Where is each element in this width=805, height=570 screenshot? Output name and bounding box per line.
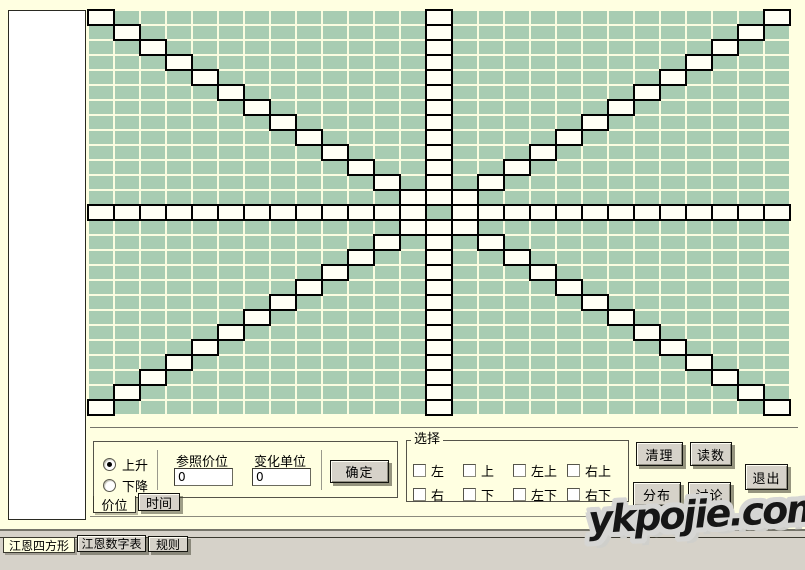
grid-cell[interactable]: [687, 71, 711, 84]
grid-cell[interactable]: [323, 116, 347, 129]
grid-cell[interactable]: [687, 401, 711, 414]
grid-cell[interactable]: [141, 176, 165, 189]
grid-cell[interactable]: [765, 236, 789, 249]
grid-cell[interactable]: [531, 401, 555, 414]
grid-cell[interactable]: [687, 296, 711, 309]
grid-cell[interactable]: [479, 71, 503, 84]
grid-cell-highlight[interactable]: [659, 339, 687, 356]
grid-cell[interactable]: [297, 371, 321, 384]
grid-cell[interactable]: [193, 56, 217, 69]
grid-cell[interactable]: [687, 116, 711, 129]
grid-cell[interactable]: [349, 41, 373, 54]
grid-cell-highlight[interactable]: [503, 159, 531, 176]
clean-button[interactable]: 清理: [636, 442, 683, 466]
grid-cell[interactable]: [453, 356, 477, 369]
grid-cell[interactable]: [245, 11, 269, 24]
grid-cell[interactable]: [505, 356, 529, 369]
grid-cell[interactable]: [765, 251, 789, 264]
grid-cell[interactable]: [687, 221, 711, 234]
grid-cell[interactable]: [297, 221, 321, 234]
grid-cell[interactable]: [349, 11, 373, 24]
confirm-button[interactable]: 确定: [330, 460, 389, 483]
grid-cell[interactable]: [115, 251, 139, 264]
grid-cell[interactable]: [115, 356, 139, 369]
grid-cell[interactable]: [89, 236, 113, 249]
grid-cell[interactable]: [739, 161, 763, 174]
grid-cell[interactable]: [453, 101, 477, 114]
grid-cell[interactable]: [115, 221, 139, 234]
grid-cell-highlight[interactable]: [711, 204, 739, 221]
grid-cell[interactable]: [505, 281, 529, 294]
grid-cell[interactable]: [89, 266, 113, 279]
grid-cell[interactable]: [297, 401, 321, 414]
grid-cell[interactable]: [115, 56, 139, 69]
grid-cell[interactable]: [557, 41, 581, 54]
grid-cell[interactable]: [297, 191, 321, 204]
grid-cell[interactable]: [349, 26, 373, 39]
grid-cell[interactable]: [375, 116, 399, 129]
grid-cell[interactable]: [635, 26, 659, 39]
grid-cell[interactable]: [349, 356, 373, 369]
grid-cell[interactable]: [323, 401, 347, 414]
grid-cell[interactable]: [453, 251, 477, 264]
grid-cell[interactable]: [531, 386, 555, 399]
grid-cell[interactable]: [713, 191, 737, 204]
grid-cell[interactable]: [479, 116, 503, 129]
grid-cell[interactable]: [375, 11, 399, 24]
grid-cell[interactable]: [349, 86, 373, 99]
grid-cell[interactable]: [141, 191, 165, 204]
grid-cell[interactable]: [193, 311, 217, 324]
grid-cell[interactable]: [297, 86, 321, 99]
grid-cell[interactable]: [375, 341, 399, 354]
grid-cell[interactable]: [193, 101, 217, 114]
grid-cell[interactable]: [687, 251, 711, 264]
grid-cell[interactable]: [765, 116, 789, 129]
grid-cell[interactable]: [375, 131, 399, 144]
grid-cell[interactable]: [531, 251, 555, 264]
grid-cell[interactable]: [89, 131, 113, 144]
grid-cell[interactable]: [193, 221, 217, 234]
grid-cell[interactable]: [713, 116, 737, 129]
grid-cell[interactable]: [713, 101, 737, 114]
grid-cell[interactable]: [479, 386, 503, 399]
grid-cell[interactable]: [557, 356, 581, 369]
grid-cell[interactable]: [557, 101, 581, 114]
grid-cell[interactable]: [271, 236, 295, 249]
grid-cell[interactable]: [349, 131, 373, 144]
grid-cell[interactable]: [635, 341, 659, 354]
grid-cell[interactable]: [453, 236, 477, 249]
grid-cell[interactable]: [531, 101, 555, 114]
grid-cell-highlight[interactable]: [165, 204, 193, 221]
grid-cell[interactable]: [375, 386, 399, 399]
grid-cell[interactable]: [375, 191, 399, 204]
grid-cell[interactable]: [271, 311, 295, 324]
grid-cell[interactable]: [687, 191, 711, 204]
grid-cell[interactable]: [401, 41, 425, 54]
grid-cell[interactable]: [323, 56, 347, 69]
grid-cell[interactable]: [141, 101, 165, 114]
grid-cell[interactable]: [583, 131, 607, 144]
grid-cell[interactable]: [609, 281, 633, 294]
grid-cell[interactable]: [219, 221, 243, 234]
grid-cell[interactable]: [531, 71, 555, 84]
grid-cell[interactable]: [635, 56, 659, 69]
grid-cell[interactable]: [89, 101, 113, 114]
grid-cell[interactable]: [271, 146, 295, 159]
grid-cell[interactable]: [167, 281, 191, 294]
grid-cell[interactable]: [115, 176, 139, 189]
grid-cell[interactable]: [687, 341, 711, 354]
grid-cell[interactable]: [193, 11, 217, 24]
grid-cell[interactable]: [661, 251, 685, 264]
grid-cell[interactable]: [713, 11, 737, 24]
grid-cell[interactable]: [245, 266, 269, 279]
grid-cell[interactable]: [453, 116, 477, 129]
grid-cell[interactable]: [505, 146, 529, 159]
grid-cell[interactable]: [401, 401, 425, 414]
grid-cell-highlight[interactable]: [659, 204, 687, 221]
grid-cell[interactable]: [219, 251, 243, 264]
grid-cell[interactable]: [739, 326, 763, 339]
grid-cell[interactable]: [609, 401, 633, 414]
grid-cell[interactable]: [89, 221, 113, 234]
grid-cell-highlight[interactable]: [217, 324, 245, 341]
grid-cell[interactable]: [505, 26, 529, 39]
grid-cell[interactable]: [765, 386, 789, 399]
grid-cell[interactable]: [531, 116, 555, 129]
grid-cell-highlight[interactable]: [113, 24, 141, 41]
grid-cell[interactable]: [297, 176, 321, 189]
grid-cell-highlight[interactable]: [685, 354, 713, 371]
grid-cell[interactable]: [219, 296, 243, 309]
grid-cell[interactable]: [713, 401, 737, 414]
grid-cell[interactable]: [141, 131, 165, 144]
grid-cell[interactable]: [219, 401, 243, 414]
grid-cell[interactable]: [557, 401, 581, 414]
grid-cell[interactable]: [245, 116, 269, 129]
grid-cell[interactable]: [765, 26, 789, 39]
grid-cell[interactable]: [583, 356, 607, 369]
grid-cell[interactable]: [453, 56, 477, 69]
grid-cell[interactable]: [89, 116, 113, 129]
grid-cell[interactable]: [505, 11, 529, 24]
grid-cell[interactable]: [167, 26, 191, 39]
grid-cell[interactable]: [271, 56, 295, 69]
grid-cell[interactable]: [739, 116, 763, 129]
grid-cell[interactable]: [609, 221, 633, 234]
grid-cell[interactable]: [271, 266, 295, 279]
grid-cell[interactable]: [739, 401, 763, 414]
grid-cell[interactable]: [739, 341, 763, 354]
grid-cell[interactable]: [193, 26, 217, 39]
grid-cell[interactable]: [401, 56, 425, 69]
grid-cell[interactable]: [89, 71, 113, 84]
grid-cell[interactable]: [505, 86, 529, 99]
grid-cell[interactable]: [557, 86, 581, 99]
grid-cell[interactable]: [193, 386, 217, 399]
grid-cell-highlight[interactable]: [763, 204, 791, 221]
grid-cell[interactable]: [167, 11, 191, 24]
grid-cell[interactable]: [349, 341, 373, 354]
grid-cell[interactable]: [297, 251, 321, 264]
grid-cell-highlight[interactable]: [425, 399, 453, 416]
grid-cell[interactable]: [739, 311, 763, 324]
grid-cell[interactable]: [531, 341, 555, 354]
grid-cell[interactable]: [505, 386, 529, 399]
grid-cell[interactable]: [375, 311, 399, 324]
grid-cell[interactable]: [375, 221, 399, 234]
grid-cell[interactable]: [765, 221, 789, 234]
result-listbox[interactable]: [8, 10, 86, 520]
grid-cell[interactable]: [349, 401, 373, 414]
grid-cell[interactable]: [505, 101, 529, 114]
grid-cell[interactable]: [193, 236, 217, 249]
grid-cell[interactable]: [115, 341, 139, 354]
grid-cell[interactable]: [713, 86, 737, 99]
grid-cell[interactable]: [141, 356, 165, 369]
grid-cell[interactable]: [713, 356, 737, 369]
grid-cell[interactable]: [141, 236, 165, 249]
grid-cell[interactable]: [531, 161, 555, 174]
grid-cell[interactable]: [375, 296, 399, 309]
grid-cell[interactable]: [583, 71, 607, 84]
grid-cell-highlight[interactable]: [113, 384, 141, 401]
grid-cell[interactable]: [271, 341, 295, 354]
grid-cell[interactable]: [479, 341, 503, 354]
grid-cell-highlight[interactable]: [555, 204, 583, 221]
grid-cell[interactable]: [661, 371, 685, 384]
grid-cell-highlight[interactable]: [503, 249, 531, 266]
grid-cell-highlight[interactable]: [87, 399, 115, 416]
grid-cell[interactable]: [635, 236, 659, 249]
grid-cell-highlight[interactable]: [373, 204, 401, 221]
grid-cell[interactable]: [349, 221, 373, 234]
grid-cell[interactable]: [661, 56, 685, 69]
grid-cell[interactable]: [505, 401, 529, 414]
grid-cell[interactable]: [557, 26, 581, 39]
grid-cell[interactable]: [271, 131, 295, 144]
grid-cell[interactable]: [219, 161, 243, 174]
grid-cell[interactable]: [765, 86, 789, 99]
grid-cell[interactable]: [609, 41, 633, 54]
grid-cell[interactable]: [583, 161, 607, 174]
grid-cell-highlight[interactable]: [191, 69, 219, 86]
grid-cell[interactable]: [739, 236, 763, 249]
grid-cell-highlight[interactable]: [607, 99, 635, 116]
grid-cell[interactable]: [531, 41, 555, 54]
grid-cell[interactable]: [297, 266, 321, 279]
grid-cell[interactable]: [635, 266, 659, 279]
grid-cell[interactable]: [557, 116, 581, 129]
grid-cell[interactable]: [479, 101, 503, 114]
grid-cell[interactable]: [219, 266, 243, 279]
grid-cell[interactable]: [557, 266, 581, 279]
grid-cell[interactable]: [635, 191, 659, 204]
checkbox-up[interactable]: 上: [463, 461, 494, 480]
grid-cell[interactable]: [453, 26, 477, 39]
grid-cell[interactable]: [635, 386, 659, 399]
grid-cell[interactable]: [193, 176, 217, 189]
ref-price-input[interactable]: [174, 468, 233, 486]
grid-cell[interactable]: [401, 371, 425, 384]
grid-cell[interactable]: [583, 56, 607, 69]
grid-cell-highlight[interactable]: [581, 114, 609, 131]
grid-cell-highlight[interactable]: [477, 234, 505, 251]
grid-cell[interactable]: [375, 71, 399, 84]
grid-cell[interactable]: [453, 131, 477, 144]
grid-cell[interactable]: [453, 311, 477, 324]
grid-cell-highlight[interactable]: [295, 279, 323, 296]
grid-cell[interactable]: [609, 296, 633, 309]
grid-cell[interactable]: [661, 386, 685, 399]
grid-cell[interactable]: [661, 131, 685, 144]
grid-cell[interactable]: [713, 71, 737, 84]
grid-cell[interactable]: [219, 56, 243, 69]
grid-cell[interactable]: [583, 311, 607, 324]
grid-cell[interactable]: [557, 56, 581, 69]
grid-cell[interactable]: [661, 191, 685, 204]
grid-cell[interactable]: [219, 311, 243, 324]
grid-cell[interactable]: [557, 221, 581, 234]
grid-cell[interactable]: [687, 236, 711, 249]
grid-cell[interactable]: [323, 101, 347, 114]
grid-cell[interactable]: [115, 326, 139, 339]
checkbox-downleft[interactable]: 左下: [513, 485, 557, 504]
grid-cell[interactable]: [609, 266, 633, 279]
grid-cell[interactable]: [635, 401, 659, 414]
grid-cell[interactable]: [661, 356, 685, 369]
grid-cell[interactable]: [297, 236, 321, 249]
grid-cell[interactable]: [219, 101, 243, 114]
grid-cell[interactable]: [505, 341, 529, 354]
grid-cell[interactable]: [635, 281, 659, 294]
grid-cell[interactable]: [401, 296, 425, 309]
grid-cell[interactable]: [765, 131, 789, 144]
grid-cell[interactable]: [479, 56, 503, 69]
grid-cell[interactable]: [583, 86, 607, 99]
grid-cell[interactable]: [323, 26, 347, 39]
grid-cell[interactable]: [245, 401, 269, 414]
grid-cell[interactable]: [323, 326, 347, 339]
grid-cell[interactable]: [193, 326, 217, 339]
grid-cell[interactable]: [531, 326, 555, 339]
grid-cell[interactable]: [713, 161, 737, 174]
grid-cell[interactable]: [323, 341, 347, 354]
grid-cell[interactable]: [765, 191, 789, 204]
grid-cell[interactable]: [583, 191, 607, 204]
grid-cell[interactable]: [89, 371, 113, 384]
grid-cell[interactable]: [687, 386, 711, 399]
grid-cell[interactable]: [479, 146, 503, 159]
grid-cell-highlight[interactable]: [113, 204, 141, 221]
grid-cell[interactable]: [89, 26, 113, 39]
grid-cell[interactable]: [583, 221, 607, 234]
grid-cell[interactable]: [557, 11, 581, 24]
grid-cell[interactable]: [661, 116, 685, 129]
grid-cell[interactable]: [505, 176, 529, 189]
grid-cell[interactable]: [401, 101, 425, 114]
grid-cell[interactable]: [713, 326, 737, 339]
grid-cell[interactable]: [661, 146, 685, 159]
grid-cell[interactable]: [765, 56, 789, 69]
grid-cell[interactable]: [765, 281, 789, 294]
grid-cell[interactable]: [557, 341, 581, 354]
grid-cell[interactable]: [167, 311, 191, 324]
grid-cell[interactable]: [349, 266, 373, 279]
grid-cell[interactable]: [401, 131, 425, 144]
grid-cell[interactable]: [219, 26, 243, 39]
grid-cell[interactable]: [635, 41, 659, 54]
grid-cell-highlight[interactable]: [321, 264, 349, 281]
grid-cell[interactable]: [271, 11, 295, 24]
grid-cell[interactable]: [245, 86, 269, 99]
grid-cell[interactable]: [609, 56, 633, 69]
checkbox-right[interactable]: 右: [413, 485, 444, 504]
grid-cell[interactable]: [271, 371, 295, 384]
grid-cell[interactable]: [271, 86, 295, 99]
grid-cell[interactable]: [375, 281, 399, 294]
grid-cell[interactable]: [297, 386, 321, 399]
grid-cell-highlight[interactable]: [87, 9, 115, 26]
grid-cell[interactable]: [557, 251, 581, 264]
grid-cell[interactable]: [661, 26, 685, 39]
grid-cell-highlight[interactable]: [685, 54, 713, 71]
grid-cell-highlight[interactable]: [399, 219, 427, 236]
grid-cell[interactable]: [115, 311, 139, 324]
grid-cell[interactable]: [375, 356, 399, 369]
grid-cell[interactable]: [245, 56, 269, 69]
grid-cell[interactable]: [479, 86, 503, 99]
grid-cell[interactable]: [297, 161, 321, 174]
grid-cell[interactable]: [297, 116, 321, 129]
grid-cell[interactable]: [765, 296, 789, 309]
grid-cell[interactable]: [765, 311, 789, 324]
grid-cell[interactable]: [739, 56, 763, 69]
grid-cell[interactable]: [635, 221, 659, 234]
grid-cell[interactable]: [479, 266, 503, 279]
grid-cell[interactable]: [505, 116, 529, 129]
grid-cell[interactable]: [297, 341, 321, 354]
grid-cell[interactable]: [245, 41, 269, 54]
grid-cell[interactable]: [349, 101, 373, 114]
grid-cell-highlight[interactable]: [555, 129, 583, 146]
grid-cell[interactable]: [115, 296, 139, 309]
grid-cell[interactable]: [713, 251, 737, 264]
grid-cell[interactable]: [219, 236, 243, 249]
grid-cell[interactable]: [713, 296, 737, 309]
grid-cell[interactable]: [115, 116, 139, 129]
grid-cell-highlight[interactable]: [763, 9, 791, 26]
grid-cell[interactable]: [609, 11, 633, 24]
grid-cell[interactable]: [141, 86, 165, 99]
grid-cell[interactable]: [323, 191, 347, 204]
grid-cell-highlight[interactable]: [269, 294, 297, 311]
grid-cell[interactable]: [739, 371, 763, 384]
tab-gann-table[interactable]: 江恩数字表: [77, 535, 146, 552]
grid-cell[interactable]: [89, 311, 113, 324]
grid-cell[interactable]: [557, 191, 581, 204]
grid-cell[interactable]: [713, 26, 737, 39]
grid-cell[interactable]: [505, 131, 529, 144]
grid-cell[interactable]: [401, 341, 425, 354]
grid-cell[interactable]: [141, 146, 165, 159]
grid-cell[interactable]: [167, 341, 191, 354]
grid-cell[interactable]: [323, 41, 347, 54]
grid-cell[interactable]: [531, 131, 555, 144]
grid-cell[interactable]: [635, 161, 659, 174]
